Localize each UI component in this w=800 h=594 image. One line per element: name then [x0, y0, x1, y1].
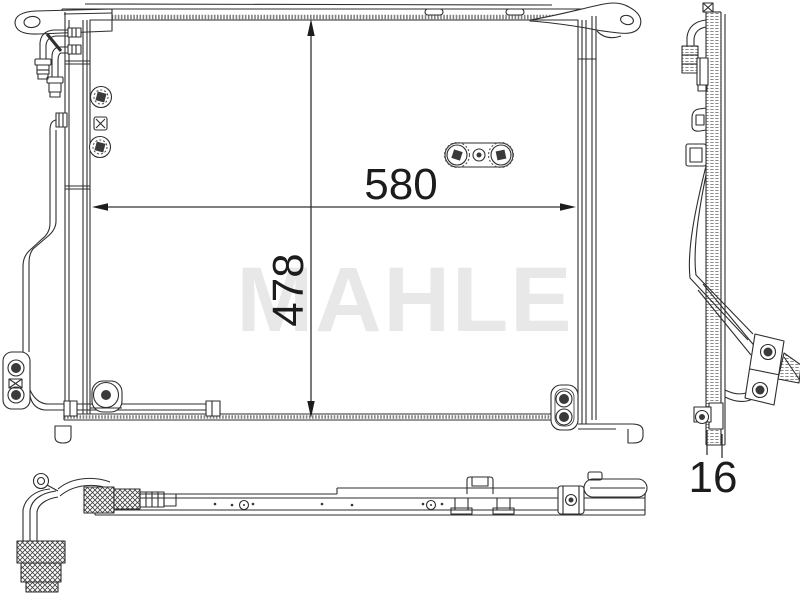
bottom-view: [17, 472, 647, 592]
pipe-connector-block: [84, 487, 114, 513]
height-dimension: [307, 19, 314, 418]
bolt-head: [764, 348, 773, 357]
left-tank: [65, 12, 90, 414]
side-connector-plate: [745, 334, 800, 405]
bolt-head: [756, 386, 765, 395]
bottom-right-mount: [551, 385, 578, 430]
side-mount-pad: [686, 144, 706, 166]
depth-dimension-label: 16: [689, 453, 738, 502]
arrowhead-right: [560, 203, 576, 210]
side-hook-tab: [692, 108, 706, 131]
side-bottom-clamp: [694, 403, 723, 429]
bottom-left-eyelet-mount: [90, 381, 122, 412]
bottom-right-bracket: [558, 472, 647, 514]
drain-stub: [55, 426, 71, 443]
bolt-head: [11, 390, 21, 400]
pipe-end-connector: [21, 563, 61, 582]
bolt-head: [559, 412, 569, 422]
bolt-head: [11, 363, 21, 373]
left-tank-fittings: [90, 87, 112, 158]
upper-left-pipes: [35, 30, 68, 97]
bottom-left-pipes: [17, 474, 176, 593]
condenser-technical-drawing: MAHLE: [0, 0, 800, 594]
bolt-head: [496, 150, 507, 161]
rail-slot: [425, 9, 443, 15]
bolt-head: [559, 394, 569, 404]
pipe-flange: [35, 59, 51, 65]
center-fitting-link: [445, 143, 514, 168]
lower-right-foot: [616, 424, 643, 443]
side-view: [682, 3, 800, 445]
bottom-rail: [64, 414, 578, 420]
bottom-center-tab: [451, 477, 514, 514]
bolt-head: [699, 414, 705, 420]
pipe-connector-block: [114, 489, 140, 509]
side-stub-pipe: [697, 58, 708, 85]
side-flange: [682, 46, 698, 73]
right-side-channel: [578, 16, 643, 443]
pipe-end-connector: [26, 582, 58, 592]
pipe-clamp: [206, 401, 220, 416]
rail-slot: [506, 9, 524, 15]
front-view: [3, 3, 643, 443]
eyelet: [34, 474, 49, 489]
drawing-canvas: MAHLE: [0, 0, 800, 594]
pipe-flange: [47, 77, 63, 83]
condenser-core: [90, 20, 578, 414]
arrowhead-up: [307, 19, 314, 36]
pipe-end-connector: [17, 541, 65, 563]
inlet-outlet-stubs: [68, 28, 81, 54]
bolt-head: [101, 390, 111, 400]
width-dimension: [92, 203, 576, 210]
arrowhead-left: [92, 203, 108, 210]
height-dimension-label: 478: [264, 253, 313, 326]
width-dimension-label: 580: [364, 160, 437, 209]
